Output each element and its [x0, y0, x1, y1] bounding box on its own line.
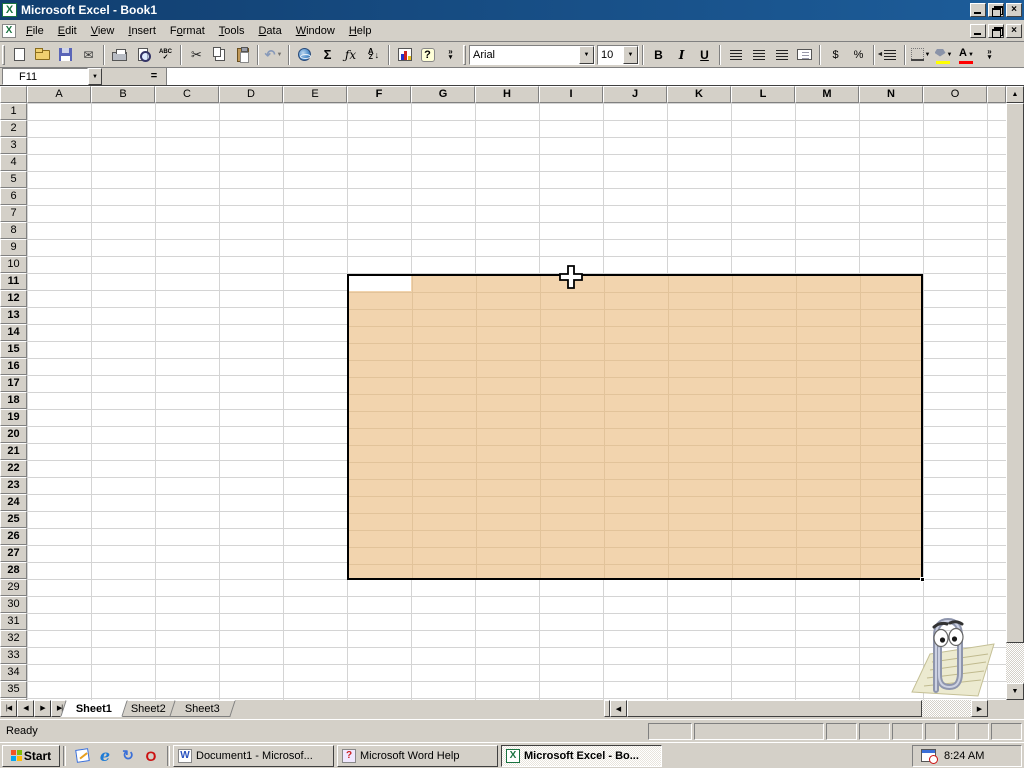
email-button[interactable]: ✉	[77, 44, 100, 66]
column-header-O[interactable]: O	[923, 86, 987, 103]
show-desktop-icon[interactable]	[72, 746, 92, 766]
italic-icon: I	[679, 48, 685, 62]
row-header-23[interactable]: 23	[0, 477, 27, 494]
status-mode: Ready	[0, 723, 646, 740]
print-icon	[112, 52, 127, 61]
open-button[interactable]	[31, 44, 54, 66]
insert-hyperlink-button[interactable]	[293, 44, 316, 66]
workbook-close-button[interactable]: ×	[1006, 24, 1022, 38]
cut-button[interactable]: ✂	[185, 44, 208, 66]
equals-button[interactable]: =	[146, 70, 162, 84]
chevron-down-icon[interactable]: ▼	[968, 52, 974, 58]
window-restore-button[interactable]	[988, 3, 1004, 17]
windows-logo-icon	[11, 750, 22, 761]
status-bar: Ready	[0, 719, 1024, 742]
fill-color-icon	[935, 49, 946, 57]
sheet-tab-label: Sheet3	[185, 703, 220, 715]
row-headers: 1234567891011121314151617181920212223242…	[0, 103, 27, 700]
underline-icon: U	[700, 48, 709, 62]
menu-help[interactable]: Help	[342, 22, 379, 40]
row-header-4[interactable]: 4	[0, 154, 27, 171]
decrease-indent-button[interactable]	[878, 44, 901, 66]
print-preview-icon	[138, 48, 148, 61]
scrollbar-corner	[988, 700, 1006, 717]
column-header-B[interactable]: B	[91, 86, 155, 103]
column-header-N[interactable]: N	[859, 86, 923, 103]
row-header-3[interactable]: 3	[0, 137, 27, 154]
workbook-restore-button[interactable]	[988, 24, 1004, 38]
save-icon	[59, 48, 72, 61]
column-header-K[interactable]: K	[667, 86, 731, 103]
row-header-14[interactable]: 14	[0, 324, 27, 341]
column-header-partial[interactable]	[987, 86, 1006, 103]
indicator-pane	[958, 723, 989, 740]
menu-window[interactable]: Window	[289, 22, 342, 40]
sheet-tab-label: Sheet2	[131, 703, 166, 715]
status-pane	[648, 723, 692, 740]
print-button[interactable]	[108, 44, 131, 66]
row-header-16[interactable]: 16	[0, 358, 27, 375]
row-header-33[interactable]: 33	[0, 647, 27, 664]
percent-icon: %	[854, 49, 864, 61]
row-header-5[interactable]: 5	[0, 171, 27, 188]
scroll-right-icon[interactable]: ▶	[971, 700, 988, 717]
word-icon: W	[178, 749, 192, 763]
row-header-10[interactable]: 10	[0, 256, 27, 273]
indicator-pane	[859, 723, 890, 740]
indicator-pane	[892, 723, 923, 740]
mores-icon: »▾	[448, 49, 452, 61]
toolbar-separator	[873, 45, 875, 65]
more-buttons-chevron[interactable]: »▾	[978, 44, 1001, 66]
underline-button[interactable]: U	[693, 44, 716, 66]
column-header-M[interactable]: M	[795, 86, 859, 103]
new-document-button[interactable]	[8, 44, 31, 66]
row-header-18[interactable]: 18	[0, 392, 27, 409]
tab-sheet3[interactable]: Sheet3	[169, 700, 235, 717]
column-header-F[interactable]: F	[347, 86, 411, 103]
align-center-button[interactable]	[747, 44, 770, 66]
indicator-pane	[991, 723, 1022, 740]
toolbar-separator	[388, 45, 390, 65]
show-desktop-icon	[75, 748, 90, 763]
font-color-button[interactable]: A▼	[955, 44, 978, 66]
worksheet-grid: ABCDEFGHIJKLMNO 123456789101112131415161…	[0, 86, 1006, 700]
sheet-tab-label: Sheet1	[76, 703, 112, 715]
row-header-30[interactable]: 30	[0, 596, 27, 613]
selection-range[interactable]	[347, 274, 923, 580]
formula-bar: F11 ▼ =	[0, 68, 1024, 86]
print-preview-button[interactable]	[131, 44, 154, 66]
align-right-icon	[776, 50, 788, 60]
indicator-pane	[826, 723, 857, 740]
help-icon: ?	[342, 749, 356, 763]
chart-wizard-button[interactable]	[393, 44, 416, 66]
column-header-I[interactable]: I	[539, 86, 603, 103]
row-header-21[interactable]: 21	[0, 443, 27, 460]
row-header-34[interactable]: 34	[0, 664, 27, 681]
vertical-scroll-track[interactable]	[1006, 643, 1024, 683]
font-color-icon: A	[959, 48, 967, 58]
font-name-value: Arial	[473, 49, 495, 61]
row-header-26[interactable]: 26	[0, 528, 27, 545]
paste-button[interactable]	[231, 44, 254, 66]
currency-icon: $	[832, 49, 838, 61]
row-header-35[interactable]: 35	[0, 681, 27, 698]
menu-file[interactable]: File	[19, 22, 51, 40]
color-bar	[936, 61, 950, 64]
insert-hyperlink-icon	[298, 48, 311, 61]
borders-button[interactable]: ▼	[909, 44, 932, 66]
column-header-A[interactable]: A	[27, 86, 91, 103]
window-minimize-button[interactable]	[970, 3, 986, 17]
row-header-12[interactable]: 12	[0, 290, 27, 307]
menu-data[interactable]: Data	[251, 22, 288, 40]
new-document-icon	[14, 48, 25, 61]
align-left-icon	[730, 50, 742, 60]
system-tray: 8:24 AM	[912, 745, 1022, 767]
row-header-32[interactable]: 32	[0, 630, 27, 647]
formula-input[interactable]	[166, 68, 1024, 85]
window-title: Microsoft Excel - Book1	[21, 3, 970, 17]
tray-time: 8:24 AM	[944, 750, 984, 762]
arrow-down-icon: ↓	[375, 50, 380, 60]
chevron-down-icon[interactable]: ▼	[579, 46, 594, 64]
row-header-22[interactable]: 22	[0, 460, 27, 477]
row-header-8[interactable]: 8	[0, 222, 27, 239]
borders-icon	[911, 48, 924, 61]
task-button-word[interactable]: WDocument1 - Microsof...	[173, 745, 334, 767]
paste-function-icon: ƒx	[345, 48, 356, 62]
color-bar	[959, 61, 973, 64]
taskbar-separator	[167, 746, 170, 766]
taskbar: Start e↻O WDocument1 - Microsof...?Micro…	[0, 742, 1024, 768]
cut-icon: ✂	[191, 48, 202, 61]
row-header-17[interactable]: 17	[0, 375, 27, 392]
row-header-15[interactable]: 15	[0, 341, 27, 358]
internet-explorer-icon[interactable]: e	[95, 746, 115, 766]
vertical-scroll-thumb[interactable]	[1006, 103, 1024, 643]
spelling-button[interactable]: ABC✓	[154, 44, 177, 66]
font-size-combo[interactable]: 10 ▼	[597, 45, 639, 65]
column-headers: ABCDEFGHIJKLMNO	[0, 86, 1006, 103]
row-header-25[interactable]: 25	[0, 511, 27, 528]
align-left-button[interactable]	[724, 44, 747, 66]
taskbar-separator	[63, 746, 66, 766]
column-header-C[interactable]: C	[155, 86, 219, 103]
autocalculate-pane[interactable]	[694, 723, 824, 740]
row-header-31[interactable]: 31	[0, 613, 27, 630]
column-header-H[interactable]: H	[475, 86, 539, 103]
font-name-combo[interactable]: Arial ▼	[469, 45, 595, 65]
toolbar-grip[interactable]	[2, 45, 5, 65]
excel-app-icon[interactable]: X	[2, 3, 17, 17]
workbook-icon[interactable]: X	[2, 24, 16, 38]
task-button-label: Document1 - Microsof...	[196, 750, 313, 762]
chart-wizard-icon	[398, 48, 412, 61]
task-button-label: Microsoft Excel - Bo...	[524, 750, 639, 762]
save-button[interactable]	[54, 44, 77, 66]
toolbar-separator	[904, 45, 906, 65]
menu-view[interactable]: View	[84, 22, 122, 40]
undo-icon: ↶	[265, 48, 276, 61]
next-sheet-button[interactable]: ▶	[34, 700, 51, 717]
cell-cursor-icon	[558, 264, 584, 290]
title-bar: X Microsoft Excel - Book1 ×	[0, 0, 1024, 20]
task-button-excel[interactable]: XMicrosoft Excel - Bo...	[501, 745, 662, 767]
chevron-down-icon[interactable]: ▼	[947, 52, 953, 58]
tray-calendar-clock-icon[interactable]	[921, 749, 936, 762]
row-header-28[interactable]: 28	[0, 562, 27, 579]
toolbar-row: ✉ABC✓✂↶▼ΣƒxAZ↓?»▾ Arial ▼ 10 ▼ BIU$%▼▼A▼…	[0, 42, 1024, 68]
toolbar-separator	[819, 45, 821, 65]
indicator-pane	[925, 723, 956, 740]
menu-insert[interactable]: Insert	[121, 22, 163, 40]
open-icon	[35, 50, 50, 60]
decrease-indent-icon	[884, 50, 896, 60]
autosum-icon: Σ	[324, 47, 332, 62]
quick-launch-bar: e↻O	[69, 746, 164, 766]
red-o-app-icon[interactable]: O	[141, 746, 161, 766]
row-header-29[interactable]: 29	[0, 579, 27, 596]
row-header-9[interactable]: 9	[0, 239, 27, 256]
workbook-minimize-button[interactable]	[970, 24, 986, 38]
vertical-scrollbar[interactable]: ▲ ▼	[1006, 86, 1024, 700]
name-box[interactable]: F11 ▼	[2, 68, 102, 85]
row-header-27[interactable]: 27	[0, 545, 27, 562]
copy-icon	[213, 47, 221, 57]
row-header-11[interactable]: 11	[0, 273, 27, 290]
help-icon: ?	[421, 48, 435, 62]
menu-format[interactable]: Format	[163, 22, 212, 40]
undo-button[interactable]: ↶▼	[262, 44, 285, 66]
row-header-2[interactable]: 2	[0, 120, 27, 137]
copy-button[interactable]	[208, 44, 231, 66]
start-button[interactable]: Start	[2, 745, 60, 767]
clippy-office-assistant[interactable]	[898, 610, 998, 700]
toolbar-separator	[642, 45, 644, 65]
scroll-down-icon[interactable]: ▼	[1006, 683, 1024, 700]
column-header-E[interactable]: E	[283, 86, 347, 103]
window-close-button[interactable]: ×	[1006, 3, 1022, 17]
menu-tools[interactable]: Tools	[212, 22, 252, 40]
align-center-icon	[753, 50, 765, 60]
align-right-button[interactable]	[770, 44, 793, 66]
toolbar-separator	[103, 45, 105, 65]
toolbar-separator	[257, 45, 259, 65]
merge-and-center-button[interactable]	[793, 44, 816, 66]
chevron-down-icon[interactable]: ▼	[88, 68, 102, 85]
chevron-down-icon[interactable]: ▼	[276, 52, 282, 58]
column-header-D[interactable]: D	[219, 86, 283, 103]
font-size-value: 10	[601, 49, 613, 61]
previous-sheet-button[interactable]: ◀	[17, 700, 34, 717]
more-buttons-chevron[interactable]: »▾	[439, 44, 462, 66]
fill-handle[interactable]	[920, 577, 925, 582]
bold-button[interactable]: B	[647, 44, 670, 66]
first-sheet-button[interactable]: |◀	[0, 700, 17, 717]
menu-bar: X FileEditViewInsertFormatToolsDataWindo…	[0, 20, 1024, 42]
help-button[interactable]: ?	[416, 44, 439, 66]
menu-edit[interactable]: Edit	[51, 22, 84, 40]
row-header-6[interactable]: 6	[0, 188, 27, 205]
horizontal-scroll-track[interactable]	[922, 700, 971, 717]
currency-button[interactable]: $	[824, 44, 847, 66]
sort-ascending-icon: AZ	[368, 49, 374, 61]
column-header-G[interactable]: G	[411, 86, 475, 103]
excel-icon: X	[506, 749, 520, 763]
toolbar-separator	[288, 45, 290, 65]
row-header-19[interactable]: 19	[0, 409, 27, 426]
row-header-24[interactable]: 24	[0, 494, 27, 511]
view-channels-icon[interactable]: ↻	[118, 746, 138, 766]
horizontal-scrollbar[interactable]: ◀ ▶	[604, 700, 1006, 717]
fill-color-button[interactable]: ▼	[932, 44, 955, 66]
active-cell[interactable]	[349, 276, 411, 291]
toolbar-separator	[180, 45, 182, 65]
horizontal-scroll-thumb[interactable]	[627, 700, 922, 717]
sort-ascending-button[interactable]: AZ↓	[362, 44, 385, 66]
select-all-corner[interactable]	[0, 86, 27, 103]
column-header-J[interactable]: J	[603, 86, 667, 103]
bold-icon: B	[654, 48, 663, 62]
name-box-value[interactable]: F11	[2, 68, 88, 85]
spelling-icon: ABC✓	[159, 49, 172, 61]
row-header-7[interactable]: 7	[0, 205, 27, 222]
toolbar-grip[interactable]	[463, 45, 466, 65]
paste-function-button[interactable]: ƒx	[339, 44, 362, 66]
column-header-L[interactable]: L	[731, 86, 795, 103]
row-header-1[interactable]: 1	[0, 103, 27, 120]
tab-sheet1[interactable]: Sheet1	[60, 700, 128, 717]
scroll-left-icon[interactable]: ◀	[610, 700, 627, 717]
chevron-down-icon[interactable]: ▼	[623, 46, 638, 64]
merge-and-center-icon	[797, 49, 812, 60]
task-button-help[interactable]: ?Microsoft Word Help	[337, 745, 498, 767]
toolbar-separator	[719, 45, 721, 65]
task-button-label: Microsoft Word Help	[360, 750, 459, 762]
email-icon: ✉	[83, 49, 93, 61]
italic-button[interactable]: I	[670, 44, 693, 66]
mores-icon: »▾	[987, 49, 991, 61]
start-label: Start	[24, 749, 51, 763]
percent-button[interactable]: %	[847, 44, 870, 66]
paste-icon	[237, 48, 249, 62]
row-header-20[interactable]: 20	[0, 426, 27, 443]
row-header-13[interactable]: 13	[0, 307, 27, 324]
scroll-up-icon[interactable]: ▲	[1006, 86, 1024, 103]
autosum-button[interactable]: Σ	[316, 44, 339, 66]
chevron-down-icon[interactable]: ▼	[925, 52, 931, 58]
